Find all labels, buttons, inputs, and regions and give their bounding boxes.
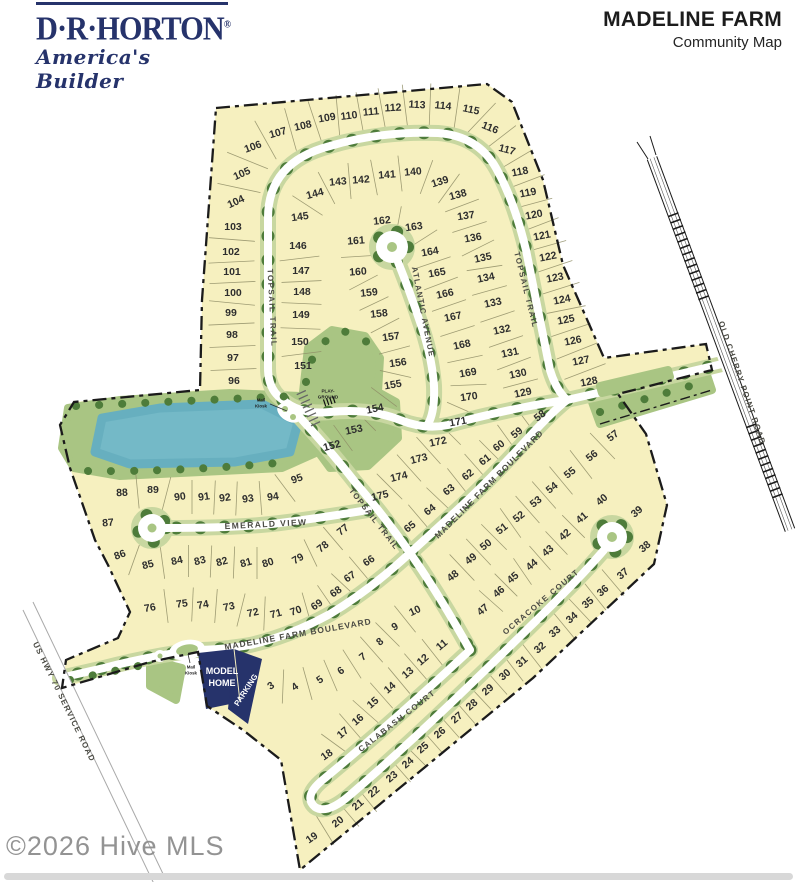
lot-number: 99 bbox=[225, 307, 237, 319]
street-name: OLD CHERRY POINT ROAD bbox=[717, 320, 768, 446]
lot-number: 111 bbox=[362, 105, 380, 118]
lot-number: 157 bbox=[381, 330, 400, 344]
lot-number: 145 bbox=[290, 210, 309, 224]
mls-watermark: ©2026 Hive MLS bbox=[6, 831, 225, 862]
dr-horton-logo: D·R·HORTON® America's Builder bbox=[36, 2, 228, 93]
lot-number: 151 bbox=[294, 360, 312, 372]
amenity-label: Mail bbox=[187, 665, 196, 670]
lot-number: 87 bbox=[102, 517, 115, 530]
lot-number: 163 bbox=[404, 220, 423, 234]
lot-number: 98 bbox=[226, 329, 238, 341]
lot-number: 75 bbox=[175, 597, 188, 611]
pond bbox=[95, 404, 298, 464]
lot-number: 90 bbox=[173, 490, 186, 504]
lot-number: 149 bbox=[292, 309, 310, 321]
community-map: TOPSAIL TRAILTOPSAIL TRAILTOPSAIL TRAILA… bbox=[0, 0, 797, 882]
community-map-page: TOPSAIL TRAILTOPSAIL TRAILTOPSAIL TRAILA… bbox=[0, 0, 797, 882]
lot-number: 159 bbox=[360, 286, 379, 300]
amenity-label: PLAY- bbox=[321, 389, 335, 394]
lot-number: 150 bbox=[291, 336, 309, 348]
lot-number: 103 bbox=[224, 221, 242, 233]
lot-number: 94 bbox=[266, 490, 279, 504]
page-title: MADELINE FARM bbox=[603, 8, 782, 32]
lot-number: 147 bbox=[292, 265, 310, 277]
lot-number: 137 bbox=[456, 209, 475, 223]
logo-brand: D·R·HORTON® bbox=[36, 8, 224, 46]
lot-number: 97 bbox=[227, 352, 239, 364]
amenity-label: Mail bbox=[257, 398, 266, 403]
horizontal-scrollbar[interactable] bbox=[4, 873, 793, 880]
lot-number: 88 bbox=[116, 487, 128, 500]
lot-number: 93 bbox=[241, 492, 254, 506]
lot-number: 101 bbox=[223, 266, 241, 278]
lot-number: 92 bbox=[218, 491, 231, 505]
logo-rule bbox=[36, 2, 228, 5]
page-subtitle: Community Map bbox=[603, 34, 782, 51]
lot-number: 158 bbox=[370, 307, 389, 321]
lot-number: 148 bbox=[293, 286, 311, 298]
lot-number: 100 bbox=[224, 287, 242, 299]
lot-number: 76 bbox=[143, 601, 157, 615]
logo-tagline: America's Builder bbox=[36, 45, 228, 93]
lot-number: 170 bbox=[459, 390, 478, 404]
registered-mark: ® bbox=[224, 19, 231, 31]
old-cherry-point-road bbox=[637, 136, 795, 532]
lot-number: 162 bbox=[373, 214, 392, 228]
entrance-green-teardrop bbox=[150, 660, 182, 700]
lot-number: 74 bbox=[196, 598, 210, 612]
lot-number: 161 bbox=[347, 234, 365, 247]
title-block: MADELINE FARM Community Map bbox=[603, 8, 782, 51]
lot-number: 102 bbox=[222, 246, 240, 258]
lot-number: 141 bbox=[378, 168, 396, 181]
lot-number: 160 bbox=[349, 265, 367, 278]
lot-number: 156 bbox=[388, 356, 407, 370]
amenity-label: Kiosk bbox=[255, 404, 268, 409]
lot-number: 140 bbox=[404, 165, 423, 178]
amenity-label: MODEL bbox=[206, 666, 239, 676]
lot-number: 143 bbox=[329, 175, 348, 188]
lot-number: 146 bbox=[289, 240, 307, 252]
lot-number: 113 bbox=[408, 99, 426, 112]
lot-number: 110 bbox=[340, 109, 358, 123]
lot-number: 96 bbox=[228, 375, 240, 387]
lot-number: 114 bbox=[434, 99, 452, 113]
lot-number: 142 bbox=[352, 173, 370, 186]
amenity-label: Kiosk bbox=[185, 671, 198, 676]
lot-number: 91 bbox=[197, 490, 210, 504]
amenity-label: HOME bbox=[209, 678, 236, 688]
amenity-label: GROUND bbox=[318, 395, 339, 400]
lot-number: 112 bbox=[384, 102, 402, 115]
lot-number: 89 bbox=[147, 484, 159, 496]
